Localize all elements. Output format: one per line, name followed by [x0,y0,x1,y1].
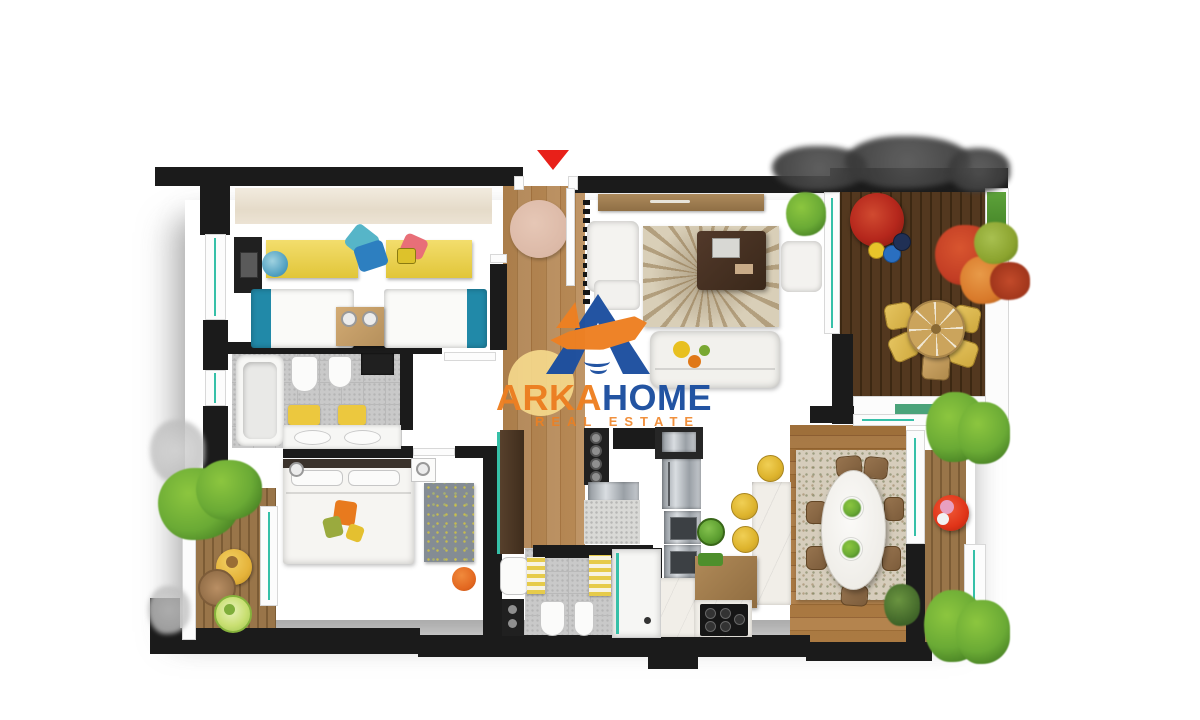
coffee-table-book [735,264,753,274]
bidet-bath1 [328,356,352,388]
entry-door-leaf [566,188,575,286]
wall-bath1-right [400,352,413,430]
corridor-floor [412,352,507,448]
window-left-1-glass [214,238,216,316]
balcony-right-plate-white [937,513,949,525]
island-stool-2 [731,493,758,520]
hall-closet [500,430,524,554]
island-stool-3 [732,526,759,553]
cooktop-burner-2 [720,608,731,619]
bath2-sink [500,557,529,595]
balcony-fruit [226,556,238,568]
entry-door-jamb-left [514,176,524,190]
kids-wardrobe [235,188,492,224]
hall-shelf-knob-3 [590,458,602,470]
bath1-sink-left [294,430,331,445]
wall-bottom-tab [648,654,698,669]
kids-toy [397,248,416,264]
kids-desk-monitor [240,252,258,278]
dining-chair-right-1 [884,497,904,521]
bath1-mat-left [288,405,320,425]
breakfast-table-tray [698,553,723,566]
floor-plan-scene: ARKAHOME REAL ESTATE [0,0,1200,720]
entry-round-rug [510,200,568,258]
wall-left-seg1 [203,186,228,234]
dining-plant-2 [842,540,860,558]
dining-table [821,470,886,590]
kids-door-leaf [444,352,496,361]
toilet-bath1 [291,356,318,392]
living-plant [786,192,826,236]
terrace-stool-navy [893,233,911,251]
kitchen-oven-lower-door [670,551,697,574]
kids-desk-stool [262,251,288,277]
wall-bottom-main [418,635,810,657]
bath1-mat-right [338,405,366,425]
dining-chair-right-2 [882,546,901,571]
kitchen-fridge-handle [668,462,670,506]
laundry-mat [584,500,640,544]
living-armchair-right [781,241,822,292]
cooktop-burner-1 [705,608,716,619]
shower-glass [616,553,619,634]
logo-boat-sail-icon [554,302,580,328]
wall-left-seg2 [203,320,228,370]
master-lamp-left [289,462,304,477]
bath2-mat-left [527,557,545,594]
island-stool-1 [757,455,784,482]
window-dining-right-glass [914,438,916,536]
cooktop-burner-5 [734,614,745,625]
kids-lamp-left [341,311,357,327]
kids-lamp-right [362,311,378,327]
cooktop-burner-4 [720,621,731,632]
logo-wordmark: ARKAHOME [496,380,711,416]
bath1-cabinet [361,353,394,375]
outside-shrub-gray-2 [148,586,190,634]
kitchen-corner-sink [662,432,696,452]
coffee-table-laptop [712,238,740,258]
balcony-lime-plate [214,595,252,633]
terrace-table-hub [931,324,941,334]
logo-text-home: HOME [602,377,712,418]
logo-tagline: REAL ESTATE [510,414,725,429]
shower-drain [644,617,651,624]
laundry-appliance [588,482,639,502]
balcony-left-frame-glass [268,512,270,600]
master-bedroom-rug [424,483,474,562]
balcony-lime-slice [224,604,235,615]
balcony-right-bush-bottom-b [956,600,1010,664]
autumn-tree-green [974,222,1018,264]
cooktop-burner-3 [705,621,716,632]
master-duvet-fold [286,492,411,494]
logo-wave-2 [590,364,607,374]
window-terrace-dining-glass [862,419,914,421]
bath1-sink-right [344,430,381,445]
hall-shelf-knob-2 [590,445,602,457]
balcony-right-plate-pink [940,500,954,514]
arkahome-watermark: ARKAHOME REAL ESTATE [496,286,711,428]
kitchen-oven-upper-door [670,517,697,540]
window-left-2-glass [214,373,216,403]
wall-living-bottom [810,406,854,423]
master-lamp-right [416,462,430,476]
kids-entry-door-jamb [490,254,507,263]
bathtub-basin [243,362,277,439]
bath2-mat-right [589,555,611,596]
wall-bottom-dining [806,642,932,661]
dining-corner-plant [884,584,920,626]
autumn-tree-red-2 [990,262,1030,300]
kids-bed-right [384,289,487,348]
kitchen-green-bin [697,518,725,546]
shower [612,549,661,638]
master-pouf [452,567,476,591]
balcony-left-bush-b [196,460,262,520]
master-pillow-right [348,470,400,486]
bath2-cabinet-knob-2 [508,619,517,628]
bath2-toilet [540,601,565,636]
dining-plant-1 [843,499,861,517]
hall-shelf-knob-1 [590,432,602,444]
living-terrace-door-glass [831,198,833,328]
tree-silhouette-3 [948,148,1010,192]
bath2-cabinet-knob-1 [508,605,517,614]
entrance-arrow-icon [537,150,569,170]
balcony-right-bush-top-b [958,402,1010,464]
bath2-bidet [574,601,594,636]
master-door-leaf [413,448,455,456]
living-console-handle [650,200,690,203]
logo-text-arka: ARKA [496,377,602,418]
